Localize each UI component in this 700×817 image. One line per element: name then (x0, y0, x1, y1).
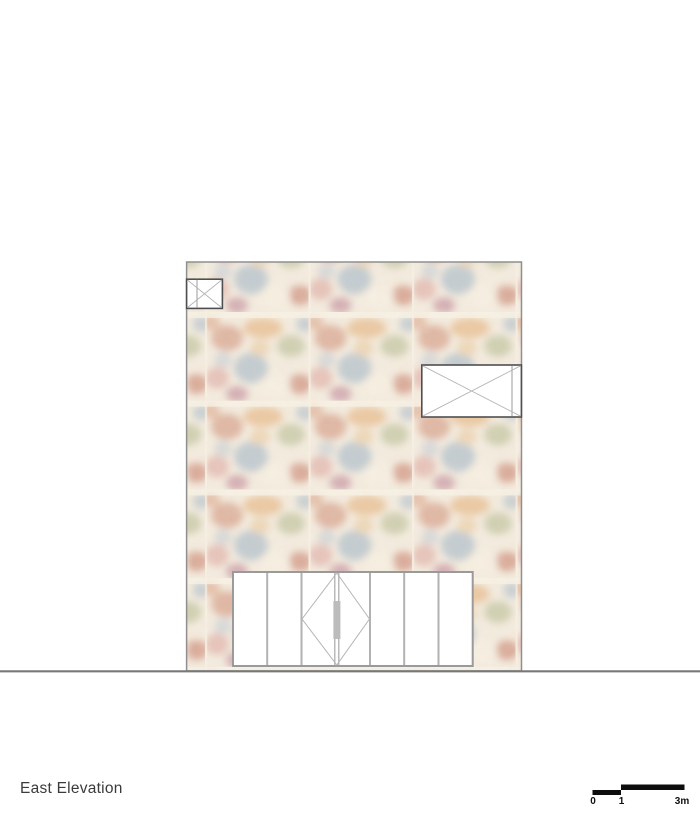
entrance-door (233, 572, 473, 666)
scale-bar (593, 785, 685, 796)
scale-bar-segment-lower (593, 790, 622, 795)
door-frame (233, 572, 473, 666)
door-handle (333, 601, 340, 639)
scale-label-3m: 3m (675, 796, 689, 807)
window-right (422, 365, 522, 417)
window-top-left (187, 279, 223, 308)
elevation-drawing (0, 0, 700, 817)
scale-bar-segment-upper (621, 785, 685, 791)
elevation-sheet: East Elevation 0 1 3m (0, 0, 700, 817)
scale-label-1: 1 (619, 796, 625, 807)
drawing-title: East Elevation (20, 780, 123, 798)
scale-label-0: 0 (590, 796, 596, 807)
